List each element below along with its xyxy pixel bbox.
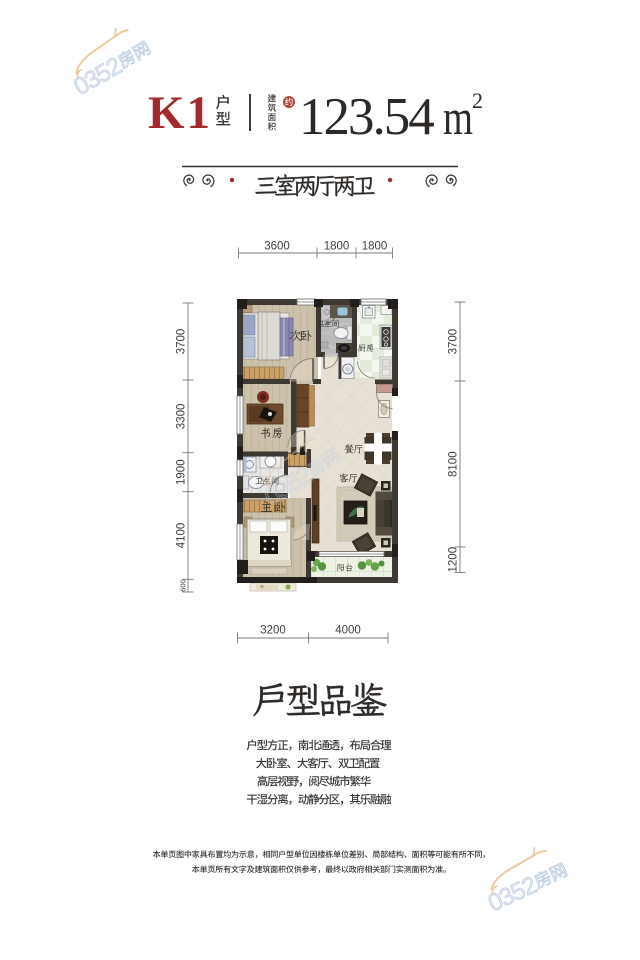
svg-text:4100: 4100 bbox=[176, 523, 188, 549]
svg-text:2: 2 bbox=[472, 88, 483, 113]
svg-text:600: 600 bbox=[179, 579, 188, 592]
svg-text:123.54: 123.54 bbox=[299, 88, 434, 146]
svg-text:8100: 8100 bbox=[448, 451, 460, 477]
svg-text:3700: 3700 bbox=[448, 329, 460, 355]
svg-text:K1: K1 bbox=[148, 87, 212, 139]
svg-text:1800: 1800 bbox=[362, 241, 388, 253]
svg-text:3300: 3300 bbox=[176, 404, 188, 430]
svg-text:1200: 1200 bbox=[448, 547, 460, 573]
svg-text:3200: 3200 bbox=[260, 625, 286, 637]
svg-text:m: m bbox=[443, 89, 473, 145]
svg-text:4000: 4000 bbox=[335, 625, 361, 637]
svg-text:1900: 1900 bbox=[176, 459, 188, 485]
svg-text:3700: 3700 bbox=[176, 329, 188, 355]
svg-text:3600: 3600 bbox=[264, 241, 290, 253]
svg-text:1800: 1800 bbox=[324, 241, 350, 253]
